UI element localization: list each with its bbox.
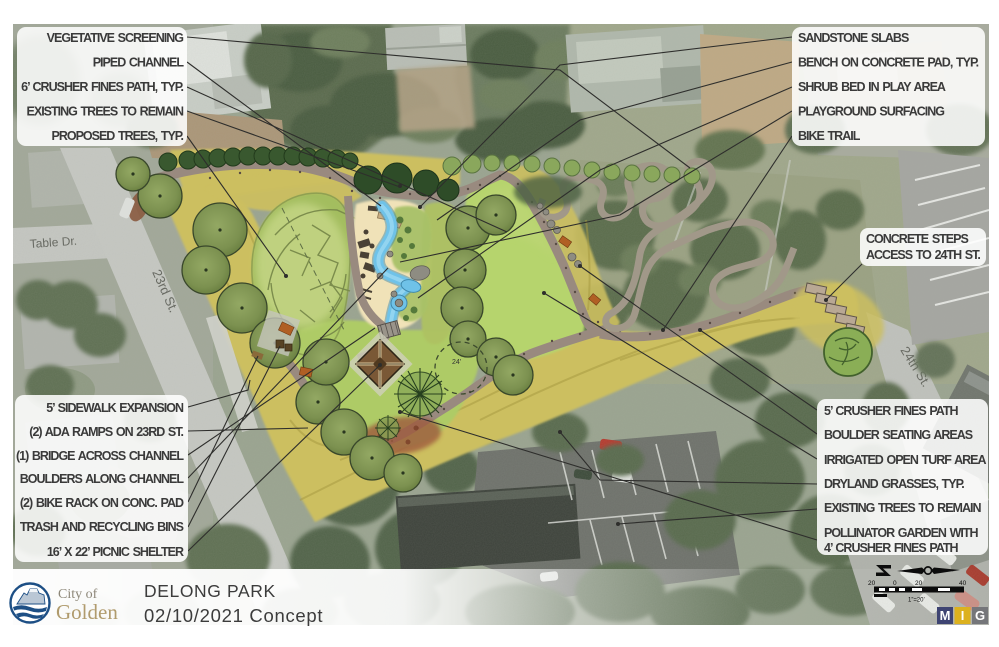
svg-text:DELONG PARK: DELONG PARK	[144, 581, 276, 601]
svg-text:(2) ADA RAMPS ON 23RD ST.: (2) ADA RAMPS ON 23RD ST.	[29, 425, 183, 439]
svg-text:1”=20’: 1”=20’	[908, 598, 925, 604]
svg-text:POLLINATOR GARDEN WITH: POLLINATOR GARDEN WITH	[824, 526, 979, 540]
svg-text:16’ X 22’ PICNIC SHELTER: 16’ X 22’ PICNIC SHELTER	[47, 545, 184, 559]
svg-text:(2) BIKE RACK ON CONC. PAD: (2) BIKE RACK ON CONC. PAD	[20, 496, 184, 510]
svg-text:BOULDER SEATING AREAS: BOULDER SEATING AREAS	[824, 428, 973, 442]
svg-text:SANDSTONE SLABS: SANDSTONE SLABS	[798, 31, 909, 45]
svg-text:CONCRETE STEPS: CONCRETE STEPS	[866, 232, 968, 246]
svg-text:40: 40	[959, 580, 967, 587]
svg-text:5’ CRUSHER FINES PATH: 5’ CRUSHER FINES PATH	[824, 404, 959, 418]
svg-text:PLAYGROUND SURFACING: PLAYGROUND SURFACING	[798, 105, 944, 119]
svg-text:I: I	[961, 608, 965, 623]
svg-text:24’: 24’	[452, 359, 462, 366]
svg-text:DRYLAND GRASSES, TYP.: DRYLAND GRASSES, TYP.	[824, 477, 964, 491]
svg-text:PROPOSED TREES, TYP.: PROPOSED TREES, TYP.	[51, 129, 183, 143]
svg-text:EXISTING TREES TO REMAIN: EXISTING TREES TO REMAIN	[824, 501, 981, 515]
svg-text:M: M	[940, 608, 951, 623]
svg-text:(1) BRIDGE ACROSS CHANNEL: (1) BRIDGE ACROSS CHANNEL	[16, 449, 184, 463]
svg-text:20: 20	[915, 580, 923, 587]
svg-text:20: 20	[868, 580, 876, 587]
svg-text:SHRUB BED IN PLAY AREA: SHRUB BED IN PLAY AREA	[798, 80, 946, 94]
svg-text:BENCH ON CONCRETE PAD, TYP.: BENCH ON CONCRETE PAD, TYP.	[798, 56, 979, 70]
svg-text:ACCESS TO 24TH ST.: ACCESS TO 24TH ST.	[866, 248, 980, 262]
svg-text:TRASH AND RECYCLING BINS: TRASH AND RECYCLING BINS	[20, 520, 184, 534]
svg-text:G: G	[975, 608, 985, 623]
svg-text:BIKE TRAIL: BIKE TRAIL	[798, 129, 861, 143]
svg-text:Golden: Golden	[56, 600, 118, 624]
svg-text:BOULDERS ALONG CHANNEL: BOULDERS ALONG CHANNEL	[20, 472, 185, 486]
svg-text:6’ CRUSHER FINES PATH, TYP.: 6’ CRUSHER FINES PATH, TYP.	[21, 80, 183, 94]
svg-text:0: 0	[893, 580, 897, 587]
svg-text:IRRIGATED OPEN TURF AREA: IRRIGATED OPEN TURF AREA	[824, 453, 987, 467]
svg-text:5’ SIDEWALK EXPANSION: 5’ SIDEWALK EXPANSION	[46, 401, 184, 415]
svg-text:PIPED CHANNEL: PIPED CHANNEL	[93, 56, 185, 70]
svg-text:4’ CRUSHER FINES PATH: 4’ CRUSHER FINES PATH	[824, 541, 959, 555]
svg-text:EXISTING TREES TO REMAIN: EXISTING TREES TO REMAIN	[27, 105, 184, 119]
svg-text:02/10/2021 Concept: 02/10/2021 Concept	[144, 605, 323, 626]
svg-text:VEGETATIVE SCREENING: VEGETATIVE SCREENING	[47, 31, 184, 45]
